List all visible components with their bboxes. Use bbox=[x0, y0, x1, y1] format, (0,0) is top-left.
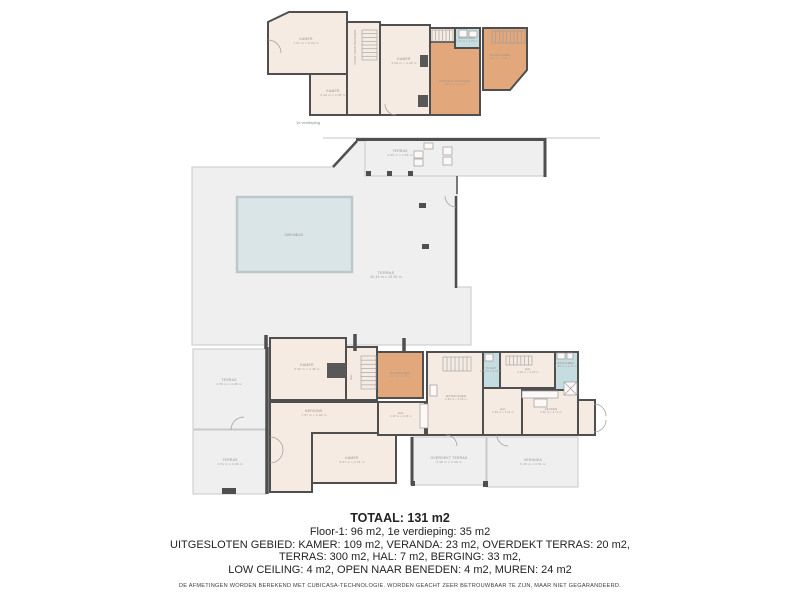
fixture bbox=[459, 30, 467, 37]
room-terras-boven bbox=[365, 140, 545, 176]
pillar bbox=[408, 171, 413, 176]
room-dims-terras-links-onder: 3.51 m x 3.06 m bbox=[217, 462, 243, 466]
fixture bbox=[564, 382, 577, 395]
pillar bbox=[222, 488, 236, 494]
floorplan-page: KAMER7.97 m x 6.00 mKAMER3.49 m x 3.05 m… bbox=[0, 0, 800, 600]
room-dims-veranda: 6.45 m x 3.51 m bbox=[520, 462, 546, 466]
summary-line-excluded-2: TERRAS: 300 m2, HAL: 7 m2, BERGING: 33 m… bbox=[0, 551, 800, 564]
fixture bbox=[443, 147, 452, 155]
fixture-outline bbox=[430, 385, 437, 396]
fixture bbox=[414, 159, 423, 166]
pillar bbox=[387, 171, 392, 176]
room-terras-links-boven bbox=[193, 349, 266, 429]
room-dims-kamer-onder: 5.67 m x 3.51 m bbox=[339, 460, 365, 464]
room-hoofdslaapkamer bbox=[430, 42, 480, 115]
floor-caption: 1e verdieping bbox=[296, 120, 320, 125]
fixture-outline bbox=[522, 391, 558, 398]
fixture bbox=[557, 353, 565, 359]
rooms-layer bbox=[192, 12, 595, 494]
fixture-outline bbox=[414, 159, 423, 166]
fixture-outline bbox=[443, 157, 452, 165]
room-dims-berging: 7.97 m x 6.99 m bbox=[301, 413, 327, 417]
room-dims-terras-boven: 4.55 m x 3.56 m bbox=[387, 153, 413, 157]
room-dims-terras-hoofd: 30.45 m x 15.55 m bbox=[370, 275, 402, 279]
room-dims-terras-links-boven: 3.56 m x 4.28 m bbox=[216, 382, 242, 386]
room-dims-kamer-1e-groot: 7.97 m x 6.00 m bbox=[293, 41, 319, 45]
room-label-zwembad: ZWEMBAD bbox=[284, 233, 303, 237]
fixture bbox=[414, 151, 423, 158]
pillar bbox=[483, 481, 488, 487]
room-vlabel-hal-trap: HAL bbox=[349, 374, 353, 380]
room-dims-kamer-1e-klein: 3.49 m x 3.05 m bbox=[320, 93, 346, 97]
fixture bbox=[567, 353, 573, 359]
fixture bbox=[522, 391, 558, 398]
fixture bbox=[534, 399, 547, 407]
room-trapgat-1e bbox=[347, 22, 380, 115]
room-dims-hal-midden: 2.96 m x 3.04 m bbox=[492, 411, 514, 414]
room-entree bbox=[578, 400, 595, 435]
pillar bbox=[366, 171, 371, 176]
fixture-outline bbox=[485, 354, 493, 361]
pillar bbox=[422, 244, 429, 249]
fixture-outline bbox=[424, 143, 433, 149]
room-dims-toilet: 1.06 m x 2.62 m bbox=[480, 370, 502, 373]
room-dims-kamer-boven: 5.50 m x 4.45 m bbox=[294, 367, 320, 371]
room-dims-hal-boven: 4.49 m x 2.00 m bbox=[517, 371, 539, 374]
pillar bbox=[419, 203, 426, 208]
closet-block bbox=[418, 95, 428, 107]
fixture-outline bbox=[414, 151, 423, 158]
room-hal-2 bbox=[378, 402, 425, 435]
fixture-outline bbox=[420, 404, 428, 428]
fixture-outline bbox=[557, 353, 565, 359]
room-hal-trap bbox=[346, 347, 377, 400]
fixture bbox=[443, 157, 452, 165]
fixture-outline bbox=[443, 147, 452, 155]
closet-block bbox=[420, 55, 428, 67]
room-dims-woonkamer: 3.69 m x 5.05 m bbox=[445, 398, 467, 401]
fixture bbox=[485, 354, 493, 361]
area-summary: TOTAAL: 131 m2 Floor-1: 96 m2, 1e verdie… bbox=[0, 512, 800, 589]
room-dims-badkamer-begane: 1.66 m x 2.65 m bbox=[555, 365, 577, 368]
summary-line-excluded-1: UITGESLOTEN GEBIED: KAMER: 109 m2, VERAN… bbox=[0, 539, 800, 552]
summary-line-excluded-3: LOW CEILING: 4 m2, OPEN NAAR BENEDEN: 4 … bbox=[0, 564, 800, 577]
room-dims-hal-2: 3.26 m x 2.39 m bbox=[390, 415, 412, 418]
room-dims-kamer-1e-midden: 3.65 m x 4.28 m bbox=[391, 61, 417, 65]
floorplan-drawing: KAMER7.97 m x 6.00 mKAMER3.49 m x 3.05 m… bbox=[0, 0, 800, 512]
summary-line-floors: Floor-1: 96 m2, 1e verdieping: 35 m2 bbox=[0, 526, 800, 539]
fixture-outline bbox=[534, 399, 547, 407]
room-dims-overdekt-terras: 5.58 m x 3.49 m bbox=[436, 460, 462, 464]
room-dims-keuken: 4.56 m x 3.71 m bbox=[540, 411, 562, 414]
fixture bbox=[430, 385, 437, 396]
room-dims-slaapkamer-begane: 3.37 m x 3.35 m bbox=[389, 375, 411, 378]
fixture bbox=[420, 404, 428, 428]
fixture-outline bbox=[459, 30, 467, 37]
room-dims-slaapkamer-1e: 3.60 m x 3.35 m bbox=[489, 57, 511, 60]
measurement-disclaimer: DE AFMETINGEN WORDEN BEREKEND MET CUBICA… bbox=[0, 583, 800, 589]
room-vlabel-trapgat-1e: OPEN NAAR BENEDEN bbox=[353, 29, 357, 64]
room-dims-badkamer-1e: 1.87 m x 1.86 m bbox=[456, 40, 478, 43]
summary-total: TOTAAL: 131 m2 bbox=[0, 512, 800, 525]
closet-block bbox=[327, 363, 346, 378]
room-dims-hoofdslaapkamer: 3.69 m x 3.36 m bbox=[444, 83, 466, 86]
fixture bbox=[424, 143, 433, 149]
pillar bbox=[411, 481, 415, 486]
fixture-outline bbox=[567, 353, 573, 359]
